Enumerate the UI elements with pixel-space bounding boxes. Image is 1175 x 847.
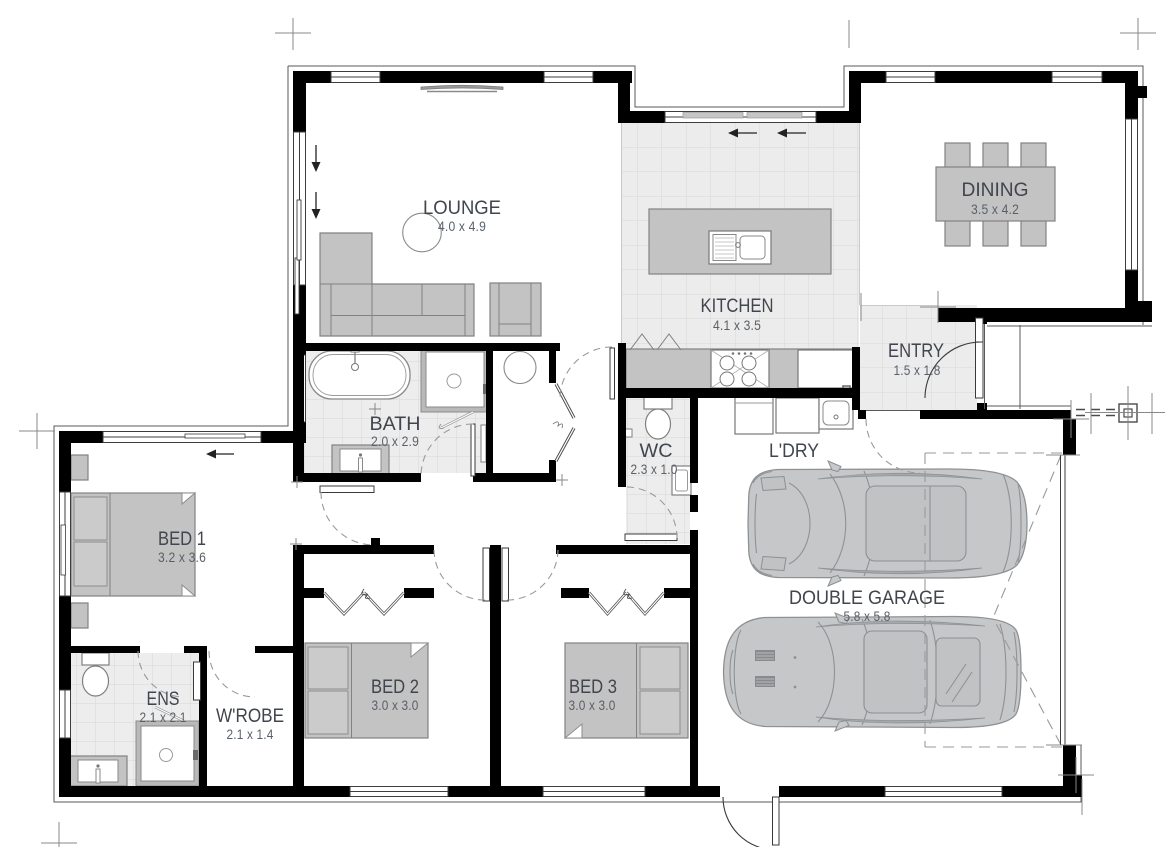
svg-text:4.0 x 4.9: 4.0 x 4.9: [438, 218, 486, 234]
svg-text:BED 3: BED 3: [569, 676, 617, 698]
svg-text:BED 2: BED 2: [371, 676, 419, 698]
svg-text:LOUNGE: LOUNGE: [423, 197, 501, 219]
svg-text:2.3 x 1.0: 2.3 x 1.0: [631, 461, 678, 477]
svg-text:KITCHEN: KITCHEN: [701, 295, 774, 317]
svg-text:2.1 x 2.1: 2.1 x 2.1: [140, 709, 187, 725]
svg-text:BATH: BATH: [370, 413, 421, 435]
svg-text:L'DRY: L'DRY: [769, 440, 819, 462]
svg-text:2.1 x 1.4: 2.1 x 1.4: [227, 726, 274, 742]
svg-text:3.0 x 3.0: 3.0 x 3.0: [372, 697, 419, 713]
svg-text:1.5 x 1.8: 1.5 x 1.8: [894, 362, 941, 378]
svg-text:4.1 x 3.5: 4.1 x 3.5: [713, 317, 761, 333]
svg-text:5.8 x 5.8: 5.8 x 5.8: [844, 608, 891, 624]
svg-text:3.2 x 3.6: 3.2 x 3.6: [158, 549, 206, 565]
svg-text:ENTRY: ENTRY: [888, 340, 944, 362]
svg-text:ENS: ENS: [147, 688, 180, 710]
svg-text:WC: WC: [640, 440, 673, 462]
svg-text:BED 1: BED 1: [158, 528, 206, 550]
svg-text:DINING: DINING: [962, 179, 1029, 201]
svg-text:2.0 x 2.9: 2.0 x 2.9: [371, 433, 419, 449]
svg-text:DOUBLE GARAGE: DOUBLE GARAGE: [789, 587, 945, 609]
svg-text:W'ROBE: W'ROBE: [216, 705, 284, 727]
svg-text:3.5 x 4.2: 3.5 x 4.2: [971, 201, 1019, 217]
svg-text:3.0 x 3.0: 3.0 x 3.0: [569, 697, 616, 713]
